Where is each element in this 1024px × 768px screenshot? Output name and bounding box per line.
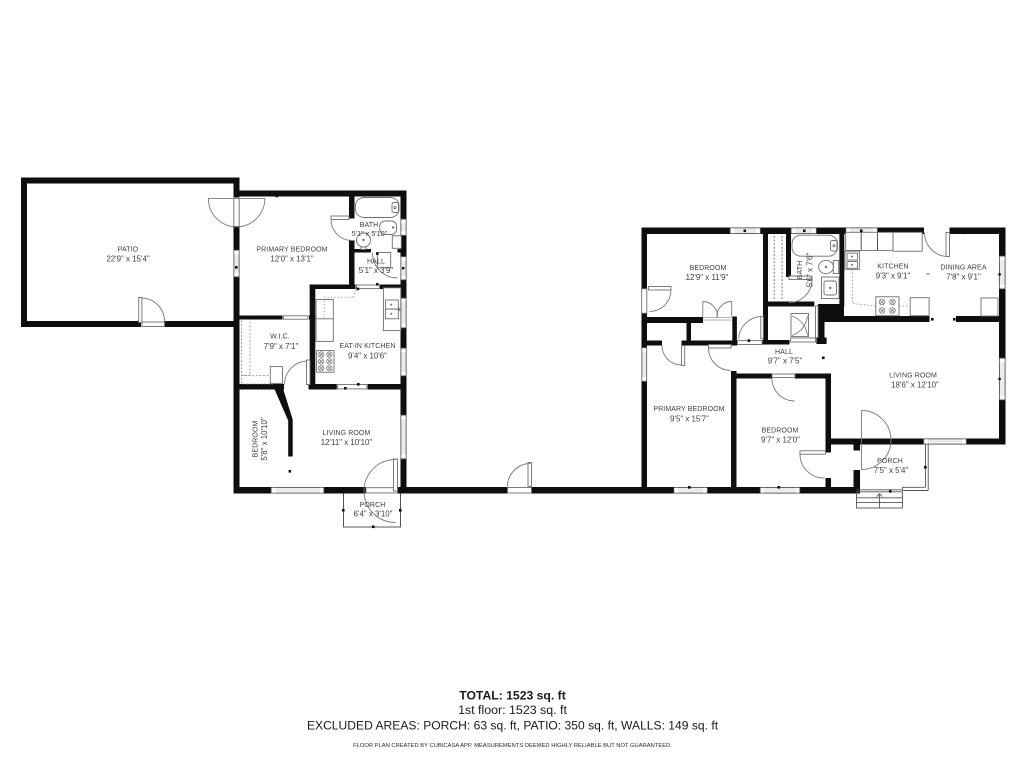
svg-text:KITCHEN: KITCHEN	[877, 264, 908, 271]
svg-text:9'7" x 12'0": 9'7" x 12'0"	[761, 436, 800, 445]
svg-text:9'7" x 7'5": 9'7" x 7'5"	[768, 357, 803, 366]
svg-text:HALL: HALL	[367, 259, 385, 266]
svg-text:FLOOR PLAN CREATED BY CUBICASA: FLOOR PLAN CREATED BY CUBICASA APP. MEAS…	[353, 743, 672, 749]
svg-text:PRIMARY BEDROOM: PRIMARY BEDROOM	[653, 406, 724, 413]
svg-text:HALL: HALL	[775, 349, 793, 356]
svg-text:18'6" x 12'10": 18'6" x 12'10"	[891, 381, 939, 390]
svg-text:7'9" x 7'1": 7'9" x 7'1"	[264, 342, 299, 351]
svg-text:9'4" x 10'6": 9'4" x 10'6"	[348, 351, 387, 360]
svg-text:5'8" x 10'10": 5'8" x 10'10"	[260, 417, 269, 460]
svg-text:TOTAL: 1523 sq. ft: TOTAL: 1523 sq. ft	[459, 689, 566, 703]
svg-text:5'1" x 5'10": 5'1" x 5'10"	[352, 229, 388, 238]
svg-text:DINING AREA: DINING AREA	[940, 265, 986, 272]
svg-text:EAT-IN KITCHEN: EAT-IN KITCHEN	[339, 343, 395, 350]
svg-text:12'0" x 13'1": 12'0" x 13'1"	[270, 255, 313, 264]
svg-text:6'4" x 3'10": 6'4" x 3'10"	[354, 510, 393, 519]
svg-text:9'5" x 15'7": 9'5" x 15'7"	[670, 415, 709, 424]
svg-text:22'9" x 15'4": 22'9" x 15'4"	[106, 255, 149, 264]
svg-text:LIVING ROOM: LIVING ROOM	[323, 430, 371, 437]
svg-text:5'6" x 7'6": 5'6" x 7'6"	[806, 253, 815, 288]
svg-text:PORCH: PORCH	[360, 502, 386, 509]
svg-text:7'5" x 5'4": 7'5" x 5'4"	[874, 466, 909, 475]
svg-text:9'3" x 9'1": 9'3" x 9'1"	[876, 272, 911, 281]
svg-text:W.I.C.: W.I.C.	[270, 334, 290, 341]
svg-text:12'9" x 11'9": 12'9" x 11'9"	[686, 273, 729, 282]
svg-text:12'11" x 10'10": 12'11" x 10'10"	[321, 438, 373, 447]
svg-text:BEDROOM: BEDROOM	[690, 265, 727, 272]
svg-text:**: **	[926, 273, 930, 279]
svg-text:7'8" x 9'1": 7'8" x 9'1"	[946, 273, 981, 282]
svg-text:EXCLUDED AREAS: PORCH: 63 sq.: EXCLUDED AREAS: PORCH: 63 sq. ft, PATIO:…	[307, 718, 719, 732]
svg-text:PORCH: PORCH	[877, 458, 903, 465]
svg-text:BEDROOM: BEDROOM	[253, 420, 260, 457]
svg-text:1st floor: 1523 sq. ft: 1st floor: 1523 sq. ft	[458, 703, 567, 717]
svg-text:PATIO: PATIO	[118, 247, 139, 254]
svg-text:5'1" x 3'9": 5'1" x 3'9"	[359, 266, 394, 275]
svg-text:PRIMARY BEDROOM: PRIMARY BEDROOM	[256, 247, 327, 254]
svg-text:BEDROOM: BEDROOM	[762, 428, 799, 435]
svg-text:LIVING ROOM: LIVING ROOM	[889, 373, 937, 380]
svg-text:BATH: BATH	[797, 261, 804, 280]
